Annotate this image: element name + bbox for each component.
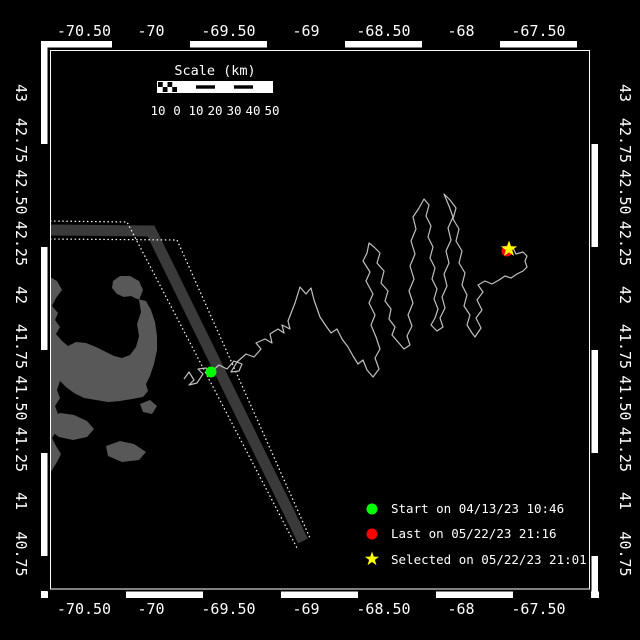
background xyxy=(0,0,640,640)
scale-tick-label: 0 xyxy=(173,103,181,118)
legend-selected-label: Selected on 05/22/23 21:01 xyxy=(391,552,587,567)
scale-bar-stripe xyxy=(234,85,253,88)
scale-tick-label: 10 xyxy=(150,103,165,118)
lat-tick-label: 42 xyxy=(616,286,634,304)
lon-tick-label: -69 xyxy=(292,600,319,618)
lon-tick-label: -68.50 xyxy=(356,22,410,40)
lat-tick-label: 41.25 xyxy=(12,427,30,472)
zebra-border-right xyxy=(592,48,599,592)
lat-tick-label: 42.50 xyxy=(12,169,30,214)
lat-tick-label: 41 xyxy=(616,492,634,510)
lon-tick-label: -67.50 xyxy=(511,22,565,40)
legend-last-icon xyxy=(367,529,378,540)
scale-bar-stripe xyxy=(196,85,215,88)
scale-bar-title: Scale (km) xyxy=(174,63,255,79)
lat-tick-label: 41 xyxy=(12,492,30,510)
lon-tick-label: -70.50 xyxy=(57,22,111,40)
lon-tick-label: -69 xyxy=(292,22,319,40)
lon-tick-label: -68.50 xyxy=(356,600,410,618)
lat-tick-label: 43 xyxy=(616,84,634,102)
map-canvas: -70.50 -70 -69.50 -69 -68.50 -68 -67.50 … xyxy=(0,0,640,640)
legend-last-label: Last on 05/22/23 21:16 xyxy=(391,526,557,541)
scale-tick-label: 30 xyxy=(226,103,241,118)
lat-tick-label: 41.75 xyxy=(616,324,634,369)
lat-tick-label: 42.50 xyxy=(616,169,634,214)
lat-tick-label: 41.75 xyxy=(12,324,30,369)
lon-tick-label: -67.50 xyxy=(511,600,565,618)
lat-tick-label: 42.25 xyxy=(12,221,30,266)
lat-tick-label: 42.75 xyxy=(616,118,634,163)
lon-tick-label: -69.50 xyxy=(201,22,255,40)
lon-tick-label: -68 xyxy=(447,600,474,618)
lat-tick-label: 42.75 xyxy=(12,118,30,163)
legend: Start on 04/13/23 10:46 Last on 05/22/23… xyxy=(365,501,587,567)
legend-start-label: Start on 04/13/23 10:46 xyxy=(391,501,564,516)
lat-tick-label: 42.25 xyxy=(616,221,634,266)
lat-tick-label: 43 xyxy=(12,84,30,102)
lon-tick-label: -70 xyxy=(137,22,164,40)
zebra-border-top xyxy=(41,41,599,48)
start-position-marker xyxy=(206,367,217,378)
scale-tick-label: 40 xyxy=(245,103,260,118)
scale-tick-label: 20 xyxy=(207,103,222,118)
lon-tick-label: -70.50 xyxy=(57,600,111,618)
scale-tick-label: 10 xyxy=(188,103,203,118)
zebra-border-left xyxy=(41,48,48,592)
lat-axis-right: 43 42.75 42.50 42.25 42 41.75 41.50 41.2… xyxy=(616,84,634,577)
lat-axis-left: 43 42.75 42.50 42.25 42 41.75 41.50 41.2… xyxy=(12,84,30,577)
lon-tick-label: -68 xyxy=(447,22,474,40)
map-plot: -70.50 -70 -69.50 -69 -68.50 -68 -67.50 … xyxy=(0,0,640,640)
lat-tick-label: 40.75 xyxy=(616,531,634,576)
legend-start-icon xyxy=(367,504,378,515)
lat-tick-label: 40.75 xyxy=(12,531,30,576)
lon-tick-label: -69.50 xyxy=(201,600,255,618)
lat-tick-label: 42 xyxy=(12,286,30,304)
scale-tick-label: 50 xyxy=(264,103,279,118)
zebra-border-bottom xyxy=(41,592,599,599)
lon-tick-label: -70 xyxy=(137,600,164,618)
lat-tick-label: 41.50 xyxy=(12,375,30,420)
lat-tick-label: 41.50 xyxy=(616,375,634,420)
lat-tick-label: 41.25 xyxy=(616,427,634,472)
